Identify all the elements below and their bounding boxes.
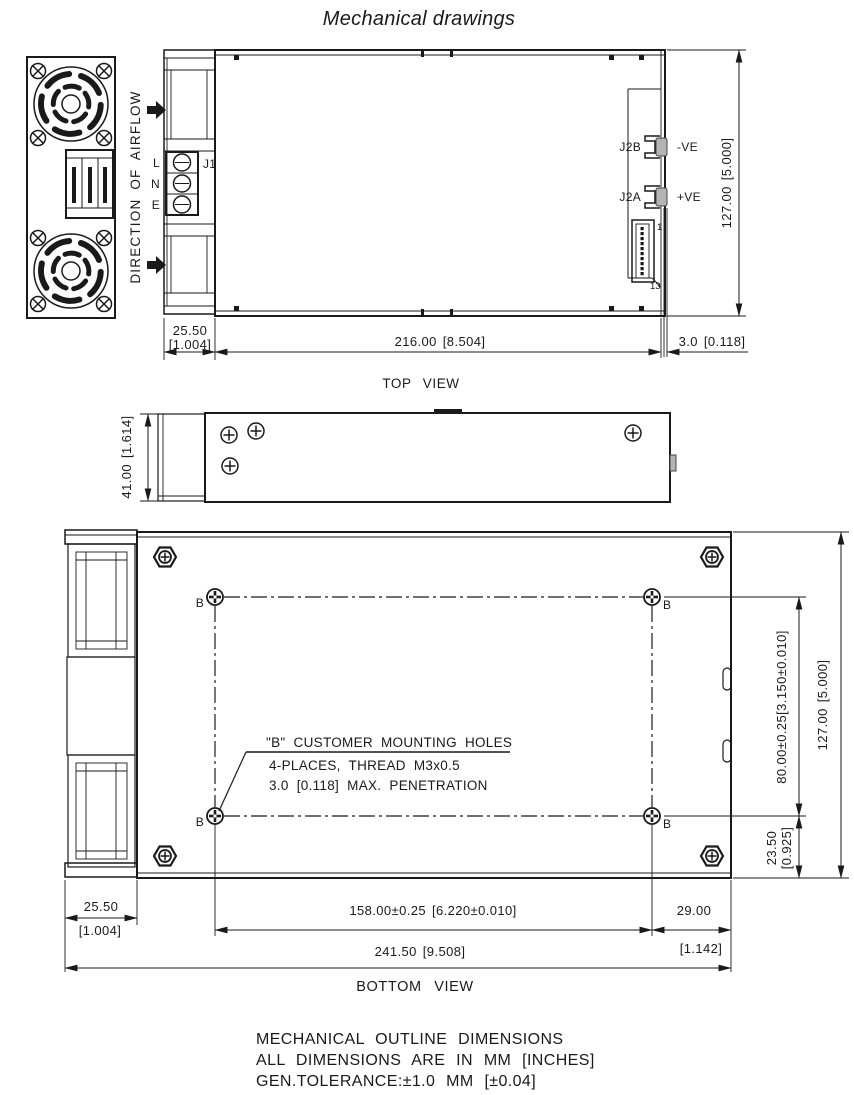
j2a-busbar <box>656 188 667 206</box>
top-view-chassis <box>215 50 665 316</box>
dim-bottom-overall-width: 127.00 [5.000] <box>815 660 830 751</box>
bottom-view-caption: BOTTOM VIEW <box>356 979 473 995</box>
pin13-label: 13 <box>650 281 661 292</box>
side-screws <box>221 423 641 474</box>
dim-side-height: 41.00 [1.614] <box>119 415 134 498</box>
mounting-note-line3: 3.0 [0.118] MAX. PENETRATION <box>269 778 488 793</box>
mounting-hole-icon <box>207 808 223 824</box>
mounting-note-line1: "B" CUSTOMER MOUNTING HOLES <box>266 735 512 750</box>
hole-label-tr: B <box>663 598 671 612</box>
dim-hole-right-offset-in: [1.142] <box>680 941 723 956</box>
top-view-front-section <box>164 50 215 314</box>
dim-top-overall-width: 127.00 [5.000] <box>719 138 734 229</box>
mounting-hole-icon <box>644 808 660 824</box>
footer-line3: GEN.TOLERANCE:±1.0 MM [±0.04] <box>256 1073 536 1090</box>
dim-bottom-front-in: [1.004] <box>79 923 122 938</box>
bottom-view: B B B B "B" CUSTOMER MOUNTING HOLES 4-PL… <box>65 530 849 995</box>
hole-label-tl: B <box>196 596 204 610</box>
top-view: L N E J1 <box>151 50 748 391</box>
dim-bottom-front-mm: 25.50 <box>84 899 119 914</box>
mounting-holes: B B B B <box>196 589 672 831</box>
pin1-label: 1 <box>657 222 662 233</box>
dim-overall-length: 241.50 [9.508] <box>375 944 466 959</box>
side-chassis <box>205 413 670 502</box>
footer-line1: MECHANICAL OUTLINE DIMENSIONS <box>256 1031 564 1048</box>
airflow-annotation: DIRECTION OF AIRFLOW <box>128 90 166 283</box>
hole-label-bl: B <box>196 815 204 829</box>
dim-hole-span-horizontal: 158.00±0.25 [6.220±0.010] <box>349 903 516 918</box>
dim-hole-bottom-offset-in: [0.925] <box>779 827 794 870</box>
j2b-busbar <box>656 138 667 156</box>
dim-top-body-length: 216.00 [8.504] <box>395 334 486 349</box>
airflow-arrow-top-icon <box>147 101 166 119</box>
footer-notes: MECHANICAL OUTLINE DIMENSIONS ALL DIMENS… <box>256 1031 595 1090</box>
j1-terminal-block <box>166 152 198 215</box>
side-top-notch <box>434 409 462 414</box>
dim-hole-span-vertical: 80.00±0.25[3.150±0.010] <box>774 630 789 784</box>
terminal-label-line: L <box>153 156 160 170</box>
drawing-canvas: Mechanical drawings DIRECTION OF AIRFLOW <box>0 0 854 1095</box>
side-view: 41.00 [1.614] <box>119 409 676 502</box>
dim-top-front-mm: 25.50 <box>173 323 208 338</box>
front-view <box>27 57 115 318</box>
terminal-label-earth: E <box>152 198 160 212</box>
page-title: Mechanical drawings <box>323 8 515 30</box>
j2a-label: J2A <box>619 190 641 204</box>
top-view-caption: TOP VIEW <box>382 376 459 391</box>
chassis-corner-screws <box>154 548 723 866</box>
mounting-note: "B" CUSTOMER MOUNTING HOLES 4-PLACES, TH… <box>219 735 512 811</box>
j2b-label: J2B <box>619 140 641 154</box>
j2a-polarity-label: +VE <box>677 190 701 204</box>
dim-top-front-in: [1.004] <box>169 337 212 352</box>
mechanical-drawing-page: Mechanical drawings DIRECTION OF AIRFLOW <box>0 0 854 1095</box>
dim-hole-bottom-offset-mm: 23.50 <box>764 831 779 866</box>
dim-hole-right-offset-mm: 29.00 <box>677 903 712 918</box>
signal-pin-header <box>632 220 654 282</box>
bottom-view-chassis <box>137 532 731 878</box>
footer-line2: ALL DIMENSIONS ARE IN MM [INCHES] <box>256 1052 595 1069</box>
hole-label-br: B <box>663 817 671 831</box>
side-right-tab <box>670 455 676 471</box>
mounting-hole-icon <box>207 589 223 605</box>
side-front-section <box>158 414 205 501</box>
bottom-view-front-rail <box>65 530 137 877</box>
airflow-arrow-bottom-icon <box>147 256 166 274</box>
airflow-label: DIRECTION OF AIRFLOW <box>128 90 143 283</box>
ac-inlet-terminal-front <box>66 150 113 218</box>
j2b-polarity-label: -VE <box>677 140 698 154</box>
dim-top-busbar: 3.0 [0.118] <box>679 334 746 349</box>
terminal-label-neutral: N <box>151 177 160 191</box>
mounting-note-line2: 4-PLACES, THREAD M3x0.5 <box>269 758 460 773</box>
mounting-hole-icon <box>644 589 660 605</box>
